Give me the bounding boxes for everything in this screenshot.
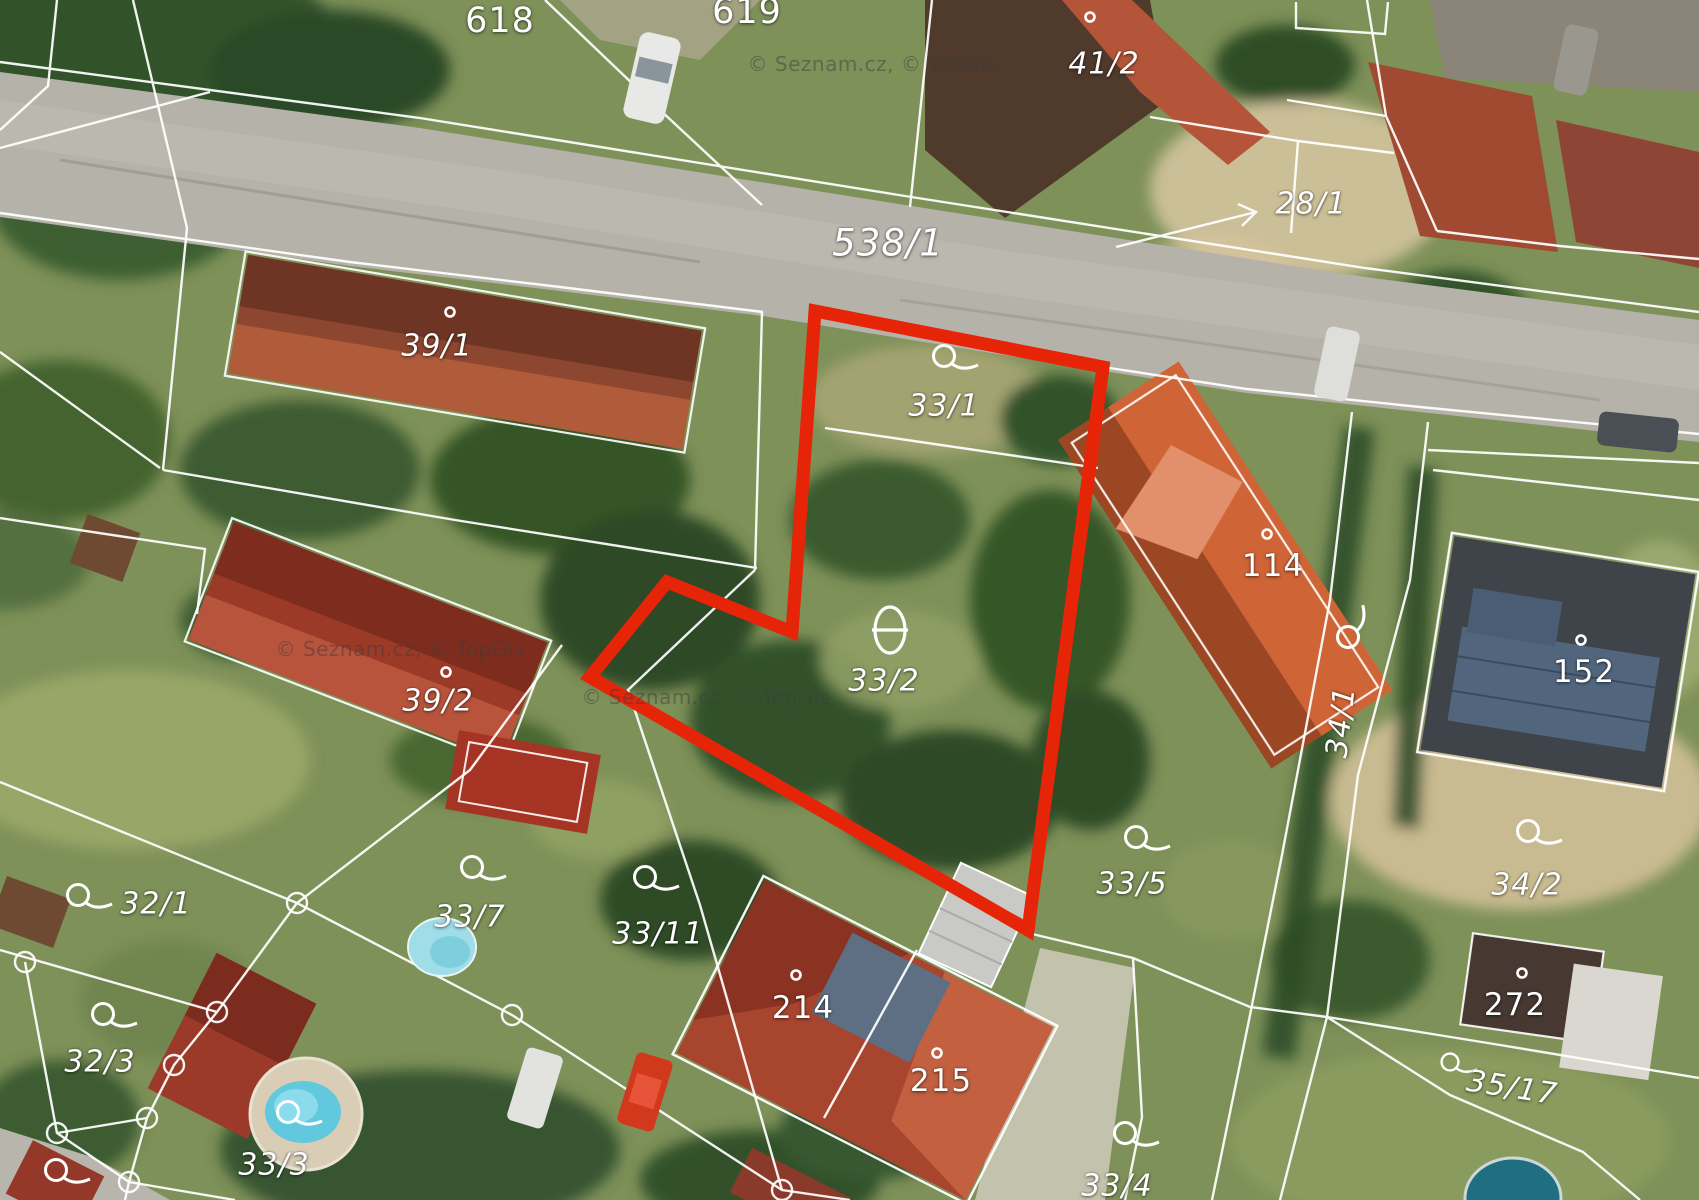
loop-symbol xyxy=(1126,827,1171,850)
aerial-map-canvas[interactable]: 61861941/228/1538/139/133/111434/115239/… xyxy=(0,0,1699,1200)
loop-symbol xyxy=(68,885,113,908)
loop-symbol xyxy=(1115,1123,1160,1146)
map-graphics xyxy=(0,0,1699,1200)
loop-symbol xyxy=(462,857,507,880)
